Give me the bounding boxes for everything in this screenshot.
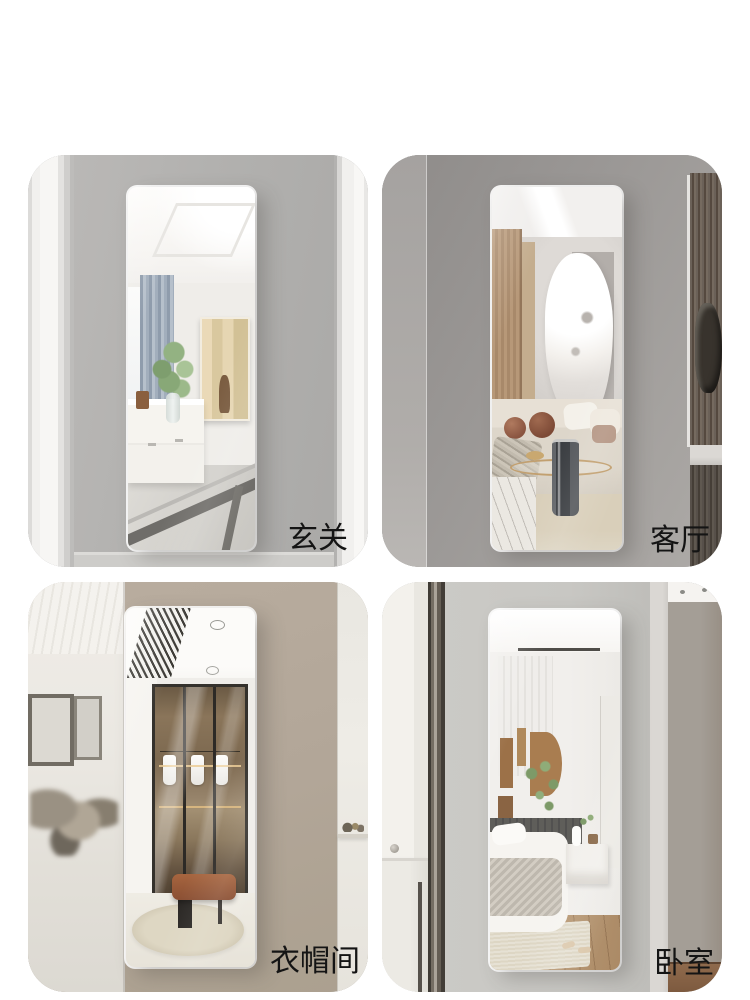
entryway-door-frame-left bbox=[28, 155, 74, 567]
room-label-living-room: 客厅 bbox=[650, 524, 710, 557]
dark-sculpture bbox=[695, 303, 722, 393]
entryway-door-frame-right bbox=[334, 155, 368, 567]
reflection-closet-door bbox=[600, 696, 620, 868]
reflection-plant-sprig bbox=[578, 812, 596, 828]
scene-card-walk-in-closet: 衣帽间 bbox=[28, 582, 368, 992]
reflection-leather-bench bbox=[172, 874, 236, 900]
reflection-blanket bbox=[490, 858, 562, 916]
reflection-ceiling-logo bbox=[206, 666, 219, 675]
doorway-wall bbox=[668, 602, 722, 964]
living-room-full-length-mirror bbox=[492, 187, 622, 550]
reflection-bench-base bbox=[178, 898, 192, 928]
room-label-entryway: 玄关 bbox=[288, 522, 348, 555]
entryway-full-length-mirror bbox=[128, 187, 255, 550]
reflection-wood-door bbox=[522, 242, 535, 412]
reflection-vase bbox=[572, 826, 581, 846]
reflection-ceiling-shadow-line bbox=[518, 648, 600, 651]
reflection-decor-item bbox=[588, 834, 598, 844]
table-leg bbox=[418, 882, 422, 992]
reflection-nightstand bbox=[566, 844, 608, 884]
doorway-edge bbox=[650, 582, 668, 992]
product-scene-collage: 玄关 客厅 bbox=[0, 0, 750, 1000]
doorway-view bbox=[668, 582, 722, 992]
cabinet-knob bbox=[390, 844, 399, 853]
vanity-decor bbox=[342, 818, 364, 832]
room-label-walk-in-closet: 衣帽间 bbox=[270, 945, 360, 978]
closet-full-length-mirror bbox=[126, 608, 255, 967]
adjacent-room-window-frame bbox=[28, 694, 74, 766]
adjacent-room-furniture bbox=[30, 778, 118, 856]
room-label-bedroom: 卧室 bbox=[654, 947, 714, 980]
scene-card-entryway: 玄关 bbox=[28, 155, 368, 567]
adjacent-room-door-frame bbox=[74, 696, 102, 760]
reflection-vase bbox=[166, 393, 180, 423]
living-room-wall-panel-left bbox=[382, 155, 427, 567]
vanity-wall bbox=[337, 582, 368, 992]
vanity-shelf bbox=[338, 834, 368, 838]
doorway-ceiling bbox=[668, 582, 722, 602]
scene-card-living-room: 客厅 bbox=[382, 155, 722, 567]
reflection-glass-wardrobe bbox=[152, 684, 248, 902]
reflection-white-sculpture bbox=[545, 253, 613, 423]
reflection-round-cushion bbox=[529, 412, 555, 438]
reflection-pillow bbox=[592, 425, 616, 443]
reflection-art-panel bbox=[500, 738, 513, 788]
reflection-round-cushion bbox=[504, 417, 526, 439]
reflection-ceiling-logo bbox=[210, 620, 225, 630]
reflection-marble-block bbox=[492, 477, 536, 550]
reflection-glass-vase bbox=[552, 439, 579, 516]
metal-trim-strip bbox=[428, 582, 445, 992]
adjacent-room-ceiling bbox=[28, 582, 123, 654]
reflection-gold-bowl bbox=[526, 451, 544, 460]
display-shelf bbox=[690, 445, 722, 465]
glass-reflection bbox=[155, 687, 245, 899]
reflection-bench-leg bbox=[218, 898, 222, 924]
reflection-wood-column bbox=[492, 229, 522, 424]
scene-card-bedroom: 卧室 bbox=[382, 582, 722, 992]
bedroom-full-length-mirror bbox=[490, 610, 620, 970]
reflection-plant-branch bbox=[515, 752, 570, 824]
reflection-artwork bbox=[200, 317, 250, 421]
